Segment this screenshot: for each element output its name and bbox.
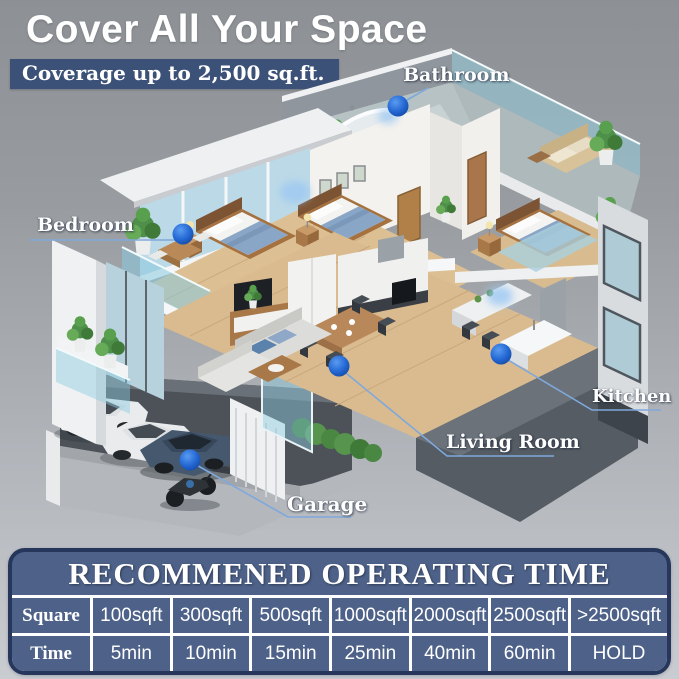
square-cell: 2000sqft	[412, 598, 489, 633]
time-cell: 5min	[93, 636, 170, 671]
label-bathroom: Bathroom	[403, 64, 509, 86]
device-dot-garage	[180, 450, 201, 471]
device-dot-bedroom	[173, 224, 194, 245]
table-grid: Square 100sqft 300sqft 500sqft 1000sqft …	[12, 598, 667, 671]
square-cell: >2500sqft	[571, 598, 667, 633]
device-dot-living-room	[329, 356, 350, 377]
time-cell: 60min	[491, 636, 568, 671]
time-cell: 25min	[332, 636, 409, 671]
square-cell: 500sqft	[252, 598, 329, 633]
time-cell: 10min	[173, 636, 250, 671]
table-title: RECOMMENED OPERATING TIME	[12, 552, 667, 598]
time-cell: HOLD	[571, 636, 667, 671]
square-cell: 300sqft	[173, 598, 250, 633]
row-header-square: Square	[12, 598, 90, 633]
device-dot-kitchen	[491, 344, 512, 365]
row-header-time: Time	[12, 636, 90, 671]
square-cell: 1000sqft	[332, 598, 409, 633]
label-kitchen: Kitchen	[592, 386, 671, 407]
operating-time-table: RECOMMENED OPERATING TIME Square 100sqft…	[8, 548, 671, 675]
poster: Cover All Your Space Coverage up to 2,50…	[0, 0, 679, 679]
label-living-room: Living Room	[446, 431, 580, 453]
label-bedroom: Bedroom	[37, 214, 134, 236]
label-garage: Garage	[287, 492, 367, 516]
square-cell: 100sqft	[93, 598, 170, 633]
time-cell: 40min	[412, 636, 489, 671]
time-cell: 15min	[252, 636, 329, 671]
square-cell: 2500sqft	[491, 598, 568, 633]
device-dot-bathroom	[388, 96, 409, 117]
